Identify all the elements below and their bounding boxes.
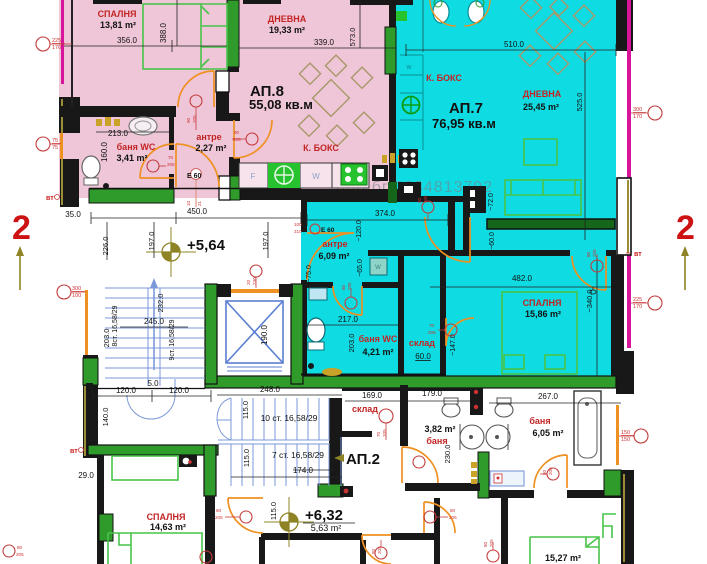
svg-text:вт: вт xyxy=(634,251,642,258)
svg-text:−75.0: −75.0 xyxy=(306,265,313,283)
svg-text:75: 75 xyxy=(52,138,58,144)
svg-text:205: 205 xyxy=(428,330,436,335)
svg-text:226.0: 226.0 xyxy=(101,237,110,256)
svg-text:80: 80 xyxy=(216,508,222,513)
svg-text:225: 225 xyxy=(52,38,61,44)
svg-text:205: 205 xyxy=(192,115,197,123)
svg-text:205: 205 xyxy=(423,195,428,203)
svg-text:ДНЕВНА: ДНЕВНА xyxy=(268,14,307,24)
svg-text:197.0: 197.0 xyxy=(261,232,270,251)
svg-text:W: W xyxy=(375,265,381,271)
svg-text:300: 300 xyxy=(633,107,642,113)
svg-text:225: 225 xyxy=(633,297,642,303)
svg-text:80: 80 xyxy=(542,469,547,475)
svg-text:205: 205 xyxy=(377,546,382,554)
svg-text:СПАЛНЯ: СПАЛНЯ xyxy=(147,512,186,522)
svg-text:ДНЕВНА: ДНЕВНА xyxy=(523,89,562,99)
svg-text:230: 230 xyxy=(252,277,257,285)
svg-text:−60.0: −60.0 xyxy=(489,232,496,250)
svg-text:267.0: 267.0 xyxy=(538,392,559,401)
svg-text:3,41 m²: 3,41 m² xyxy=(116,153,147,163)
svg-text:10 ст. 16,58/29: 10 ст. 16,58/29 xyxy=(261,413,318,423)
svg-text:баня WC: баня WC xyxy=(359,334,398,344)
svg-text:СПАЛНЯ: СПАЛНЯ xyxy=(98,9,137,19)
svg-text:21: 21 xyxy=(197,200,202,206)
svg-text:205: 205 xyxy=(215,515,223,520)
svg-text:230.0: 230.0 xyxy=(443,445,452,464)
svg-text:197.0: 197.0 xyxy=(147,232,156,251)
svg-text:АП.2: АП.2 xyxy=(346,451,380,468)
svg-text:80: 80 xyxy=(17,545,23,550)
svg-text:6,05 m²: 6,05 m² xyxy=(532,428,563,438)
svg-text:205: 205 xyxy=(382,429,387,437)
svg-text:7 ст. 16,58/29: 7 ст. 16,58/29 xyxy=(272,450,324,460)
svg-text:205: 205 xyxy=(167,162,175,167)
svg-text:205: 205 xyxy=(592,249,597,257)
svg-text:510.0: 510.0 xyxy=(504,40,525,49)
svg-text:−65.0: −65.0 xyxy=(357,259,364,277)
svg-text:300: 300 xyxy=(72,286,81,292)
svg-text:205: 205 xyxy=(233,137,241,142)
svg-text:482.0: 482.0 xyxy=(512,274,533,283)
svg-text:150: 150 xyxy=(621,430,630,436)
svg-text:К. БОКС: К. БОКС xyxy=(426,73,462,83)
svg-text:20: 20 xyxy=(246,279,251,285)
svg-text:2: 2 xyxy=(12,209,31,247)
svg-text:4,21 m²: 4,21 m² xyxy=(362,347,393,357)
svg-text:232.0: 232.0 xyxy=(156,294,165,313)
svg-text:120.0: 120.0 xyxy=(116,386,137,395)
svg-text:115.0: 115.0 xyxy=(242,449,251,467)
svg-text:−72.0: −72.0 xyxy=(488,193,495,211)
svg-text:115.0: 115.0 xyxy=(241,401,250,419)
svg-text:антре: антре xyxy=(196,132,221,142)
svg-text:179.0: 179.0 xyxy=(422,389,443,398)
svg-text:15,27 m²: 15,27 m² xyxy=(545,553,581,563)
svg-text:90: 90 xyxy=(186,117,191,123)
svg-text:450.0: 450.0 xyxy=(187,207,208,216)
svg-text:F: F xyxy=(251,172,256,181)
svg-text:525.0: 525.0 xyxy=(575,93,584,112)
svg-text:205: 205 xyxy=(347,282,352,290)
svg-text:140.0: 140.0 xyxy=(101,408,110,427)
svg-text:−340.0: −340.0 xyxy=(585,289,594,312)
svg-text:8ст. 16,58/29: 8ст. 16,58/29 xyxy=(112,305,119,346)
svg-text:217.0: 217.0 xyxy=(338,315,359,324)
svg-text:90: 90 xyxy=(234,130,240,135)
svg-text:Е 60: Е 60 xyxy=(187,173,202,180)
svg-text:склад: склад xyxy=(352,404,378,414)
svg-text:80: 80 xyxy=(371,548,376,554)
svg-text:w: w xyxy=(405,64,412,71)
svg-text:−120.0: −120.0 xyxy=(356,220,363,242)
svg-text:160.0: 160.0 xyxy=(100,141,109,162)
svg-text:120.0: 120.0 xyxy=(169,386,190,395)
svg-text:15,86 m²: 15,86 m² xyxy=(525,309,561,319)
svg-text:170: 170 xyxy=(633,114,642,120)
svg-text:206: 206 xyxy=(548,467,553,475)
svg-text:190.0: 190.0 xyxy=(260,324,269,345)
svg-text:115.0: 115.0 xyxy=(269,502,278,520)
svg-text:170: 170 xyxy=(633,304,642,310)
svg-text:75: 75 xyxy=(52,145,58,151)
svg-text:203.0: 203.0 xyxy=(347,334,356,353)
svg-text:80: 80 xyxy=(417,197,422,203)
svg-text:55,08 кв.м: 55,08 кв.м xyxy=(249,97,313,112)
svg-text:174.0: 174.0 xyxy=(293,466,314,475)
svg-text:W: W xyxy=(312,172,320,181)
svg-text:+6,32: +6,32 xyxy=(305,507,343,524)
svg-text:10: 10 xyxy=(186,200,191,206)
svg-text:388.0: 388.0 xyxy=(159,22,168,43)
svg-text:169.0: 169.0 xyxy=(362,391,383,400)
svg-text:2: 2 xyxy=(676,209,695,247)
svg-text:374.0: 374.0 xyxy=(375,209,396,218)
svg-text:Е 60: Е 60 xyxy=(321,227,335,234)
svg-text:80: 80 xyxy=(450,508,456,513)
svg-text:19,33 m²: 19,33 m² xyxy=(269,25,305,35)
svg-text:5.0: 5.0 xyxy=(147,379,159,388)
svg-text:25,45 m²: 25,45 m² xyxy=(523,102,559,112)
svg-text:баня: баня xyxy=(529,416,550,426)
svg-text:100: 100 xyxy=(294,222,302,227)
svg-text:210: 210 xyxy=(294,229,302,234)
svg-text:3,82 m²: 3,82 m² xyxy=(424,424,455,434)
svg-text:70: 70 xyxy=(429,323,435,328)
svg-text:АП.7: АП.7 xyxy=(449,100,483,117)
svg-text:203.0: 203.0 xyxy=(102,329,111,348)
svg-text:80: 80 xyxy=(483,541,488,547)
svg-text:вт: вт xyxy=(46,195,54,202)
svg-text:573.0: 573.0 xyxy=(348,28,357,47)
svg-text:6,09 m²: 6,09 m² xyxy=(318,251,349,261)
svg-text:−147.0: −147.0 xyxy=(450,334,457,356)
svg-text:70: 70 xyxy=(376,431,381,437)
svg-text:баня WC: баня WC xyxy=(117,142,156,152)
svg-text:баня: баня xyxy=(426,436,447,446)
svg-text:СПАЛНЯ: СПАЛНЯ xyxy=(523,298,562,308)
svg-text:+5,64: +5,64 xyxy=(187,237,226,254)
svg-text:80: 80 xyxy=(586,251,591,257)
svg-text:76,95 кв.м: 76,95 кв.м xyxy=(432,116,496,131)
svg-text:150: 150 xyxy=(621,437,630,443)
svg-text:К. БОКС: К. БОКС xyxy=(303,143,339,153)
svg-text:339.0: 339.0 xyxy=(314,38,335,47)
svg-text:100: 100 xyxy=(72,293,81,299)
svg-text:14,63 m²: 14,63 m² xyxy=(150,522,186,532)
svg-text:248.0: 248.0 xyxy=(260,385,281,394)
svg-text:80: 80 xyxy=(341,284,346,290)
svg-text:антре: антре xyxy=(322,239,347,249)
svg-text:70: 70 xyxy=(168,155,174,160)
svg-text:213.0: 213.0 xyxy=(108,129,129,138)
svg-text:5,63 m²: 5,63 m² xyxy=(311,523,342,533)
svg-text:13,81 m²: 13,81 m² xyxy=(100,20,136,30)
svg-text:205: 205 xyxy=(489,539,494,547)
svg-text:9ст. 16,58/29: 9ст. 16,58/29 xyxy=(169,319,176,360)
svg-text:60.0: 60.0 xyxy=(415,352,431,361)
svg-text:склад: склад xyxy=(409,338,435,348)
svg-text:356.0: 356.0 xyxy=(117,36,138,45)
svg-text:35.0: 35.0 xyxy=(65,210,81,219)
svg-text:245.0: 245.0 xyxy=(144,317,165,326)
svg-text:205: 205 xyxy=(449,515,457,520)
svg-text:вт: вт xyxy=(70,448,78,455)
svg-text:29.0: 29.0 xyxy=(78,471,94,480)
svg-text:205: 205 xyxy=(16,552,24,557)
svg-text:2,27 m²: 2,27 m² xyxy=(195,143,226,153)
svg-text:170: 170 xyxy=(52,45,61,51)
